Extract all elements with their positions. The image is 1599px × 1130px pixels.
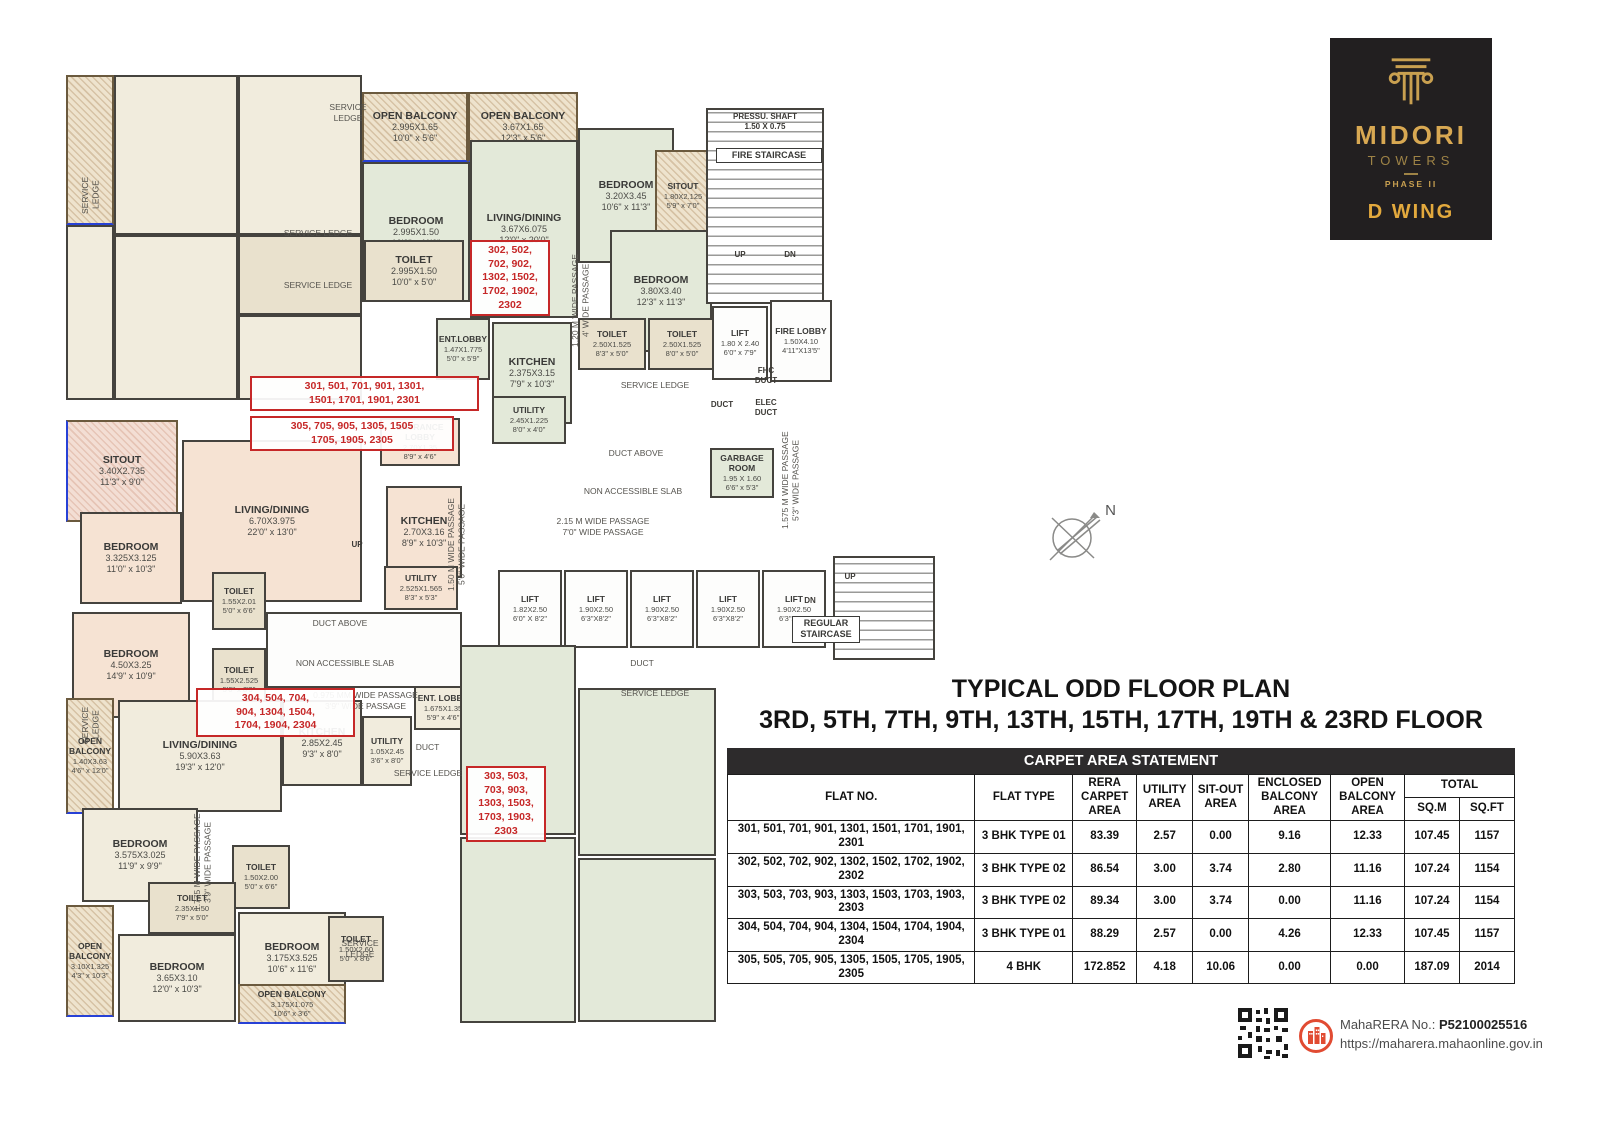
room-dim-metric: 1.95 X 1.60 bbox=[723, 474, 761, 483]
rera-footer: MahaRERA No.: P52100025516 https://mahar… bbox=[1236, 1004, 1566, 1066]
room-name: TOILET bbox=[224, 587, 254, 597]
table-cell: 172.852 bbox=[1073, 951, 1137, 984]
flat-number-badge: 302, 502, 702, 902, 1302, 1502, 1702, 19… bbox=[470, 240, 550, 316]
plan-annotation-duct: DUCT bbox=[400, 742, 455, 753]
room-lift: LIFT1.90X2.506'3"X8'2" bbox=[630, 570, 694, 648]
north-label: N bbox=[1105, 502, 1116, 519]
room-dim-metric: 2.525X1.565 bbox=[400, 584, 443, 593]
room-dim-metric: 1.90X2.50 bbox=[777, 605, 811, 614]
room-name: LIFT bbox=[719, 595, 737, 605]
room-name: LIFT bbox=[587, 595, 605, 605]
room-dim-imperial: 6'3"X8'2" bbox=[713, 614, 743, 623]
flat-number-badge: 304, 504, 704, 904, 1304, 1504, 1704, 19… bbox=[196, 688, 355, 737]
table-cell: 86.54 bbox=[1073, 853, 1137, 886]
room-bedroom: BEDROOM3.325X3.12511'0" x 10'3" bbox=[80, 512, 182, 604]
table-cell: 4.18 bbox=[1137, 951, 1193, 984]
room-dim-imperial: 5'0" x 6'6" bbox=[223, 606, 256, 615]
table-cell: 107.45 bbox=[1405, 919, 1460, 952]
room-name: OPEN BALCONY bbox=[258, 990, 326, 1000]
room-name: TOILET bbox=[395, 254, 432, 266]
room bbox=[578, 688, 716, 856]
table-cell: 10.06 bbox=[1193, 951, 1249, 984]
maharera-building-icon bbox=[1298, 1018, 1334, 1054]
room bbox=[114, 235, 238, 400]
room-dim-imperial: 11'3" x 9'0" bbox=[100, 477, 144, 488]
room-dim-metric: 3.40X2.735 bbox=[99, 466, 145, 477]
room-name: OPEN BALCONY bbox=[481, 110, 566, 122]
plan-annotation-non-accessible-slab: NON ACCESSIBLE SLAB bbox=[558, 486, 708, 497]
room bbox=[238, 75, 362, 235]
room-dim-metric: 2.45X1.225 bbox=[510, 416, 548, 425]
room-bedroom: BEDROOM3.65X3.1012'0" x 10'3" bbox=[118, 934, 236, 1022]
plan-annotation-duct-above: DUCT ABOVE bbox=[588, 448, 684, 459]
plan-annotation-fhc: FHC DUCT bbox=[746, 366, 786, 386]
room-dim-metric: 3.80X3.40 bbox=[640, 286, 681, 297]
table-cell: 2014 bbox=[1459, 951, 1514, 984]
table-cell: 3.00 bbox=[1137, 886, 1193, 919]
table-cell: 89.34 bbox=[1073, 886, 1137, 919]
room-name: OPEN BALCONY bbox=[68, 942, 112, 962]
room-dim-metric: 2.50X1.525 bbox=[663, 340, 701, 349]
flat-number-badge: 305, 705, 905, 1305, 1505 1705, 1905, 23… bbox=[250, 416, 454, 451]
table-cell: 3 BHK TYPE 01 bbox=[975, 821, 1073, 854]
room-name: LIVING/DINING bbox=[235, 504, 310, 516]
room-lift: LIFT1.90X2.506'3"X8'2" bbox=[696, 570, 760, 648]
table-cell: 9.16 bbox=[1249, 821, 1331, 854]
plan-annotation-duct-above: DUCT ABOVE bbox=[292, 618, 388, 629]
table-row: 304, 504, 704, 904, 1304, 1504, 1704, 19… bbox=[728, 919, 1515, 952]
table-cell: 302, 502, 702, 902, 1302, 1502, 1702, 19… bbox=[728, 853, 975, 886]
rera-text: MahaRERA No.: P52100025516 https://mahar… bbox=[1340, 1016, 1543, 1054]
plan-annotation-service: SERVICE LEDGE bbox=[318, 102, 378, 123]
room-dim-metric: 3.175X3.525 bbox=[266, 953, 317, 964]
room-dim-metric: 1.55X2.525 bbox=[220, 676, 258, 685]
room-dim-metric: 3.325X3.125 bbox=[105, 553, 156, 564]
room-dim-imperial: 6'0" x 7'9" bbox=[724, 348, 757, 357]
room-dim-imperial: 5'0" x 6'6" bbox=[245, 882, 278, 891]
room-dim-metric: 2.995X1.50 bbox=[391, 266, 437, 277]
room-name: TOILET bbox=[597, 330, 627, 340]
table-cell: 11.16 bbox=[1331, 853, 1405, 886]
table-cell: 304, 504, 704, 904, 1304, 1504, 1704, 19… bbox=[728, 919, 975, 952]
room-dim-metric: 3.575X3.025 bbox=[114, 850, 165, 861]
room-name: LIFT bbox=[653, 595, 671, 605]
room-dim-imperial: 3'6" x 8'0" bbox=[371, 756, 404, 765]
table-title-bar: CARPET AREA STATEMENT bbox=[727, 748, 1515, 774]
room-name: FIRE LOBBY bbox=[775, 327, 826, 337]
room-lift: LIFT1.82X2.506'0" X 8'2" bbox=[498, 570, 562, 648]
plan-annotation-service-ledge: SERVICE LEDGE bbox=[600, 380, 710, 391]
room bbox=[238, 235, 362, 315]
table-cell: 0.00 bbox=[1331, 951, 1405, 984]
brand-subtitle: TOWERS bbox=[1368, 153, 1455, 168]
phase-label: PHASE II bbox=[1385, 179, 1437, 189]
plan-title-line1: TYPICAL ODD FLOOR PLAN bbox=[727, 674, 1515, 705]
col-total-sqft: SQ.FT bbox=[1459, 798, 1514, 821]
room-name: KITCHEN bbox=[509, 356, 556, 368]
table-cell: 0.00 bbox=[1249, 886, 1331, 919]
plan-annotation-1-20-m-wide-passage: 1.20 M WIDE PASSAGE 4' WIDE PASSAGE bbox=[570, 238, 591, 363]
col-enclosed-balcony-area: ENCLOSED BALCONY AREA bbox=[1249, 775, 1331, 821]
flat-number-badge: 303, 503, 703, 903, 1303, 1503, 1703, 19… bbox=[466, 766, 546, 842]
plan-annotation-up: UP bbox=[838, 572, 862, 582]
room-dim-metric: 3.175X1.075 bbox=[271, 1000, 314, 1009]
table-cell: 2.57 bbox=[1137, 821, 1193, 854]
table-cell: 11.16 bbox=[1331, 886, 1405, 919]
room-dim-metric: 1.50X4.10 bbox=[784, 337, 818, 346]
wing-label: D WING bbox=[1368, 201, 1454, 224]
column-icon bbox=[1382, 56, 1440, 112]
plan-annotation-up: UP bbox=[345, 540, 369, 550]
room-dim-metric: 1.47X1.775 bbox=[444, 345, 482, 354]
table-cell: 301, 501, 701, 901, 1301, 1501, 1701, 19… bbox=[728, 821, 975, 854]
table-cell: 305, 505, 705, 905, 1305, 1505, 1705, 19… bbox=[728, 951, 975, 984]
room bbox=[66, 225, 114, 400]
page: { "logo": { "brand": "MIDORI", "sub": "T… bbox=[0, 0, 1599, 1130]
plan-annotation-pressu-shaft: PRESSU. SHAFT 1.50 X 0.75 bbox=[712, 112, 818, 132]
table-cell: 3.74 bbox=[1193, 853, 1249, 886]
room-name: GARBAGE ROOM bbox=[712, 454, 772, 474]
room-dim-imperial: 10'6" x 3'6" bbox=[274, 1009, 311, 1018]
table-cell: 3 BHK TYPE 02 bbox=[975, 886, 1073, 919]
room-name: TOILET bbox=[246, 863, 276, 873]
plan-annotation-service-ledge: SERVICE LEDGE bbox=[268, 228, 368, 239]
plan-annotation-non-accessible-slab: NON ACCESSIBLE SLAB bbox=[270, 658, 420, 669]
room-open-balcony: OPEN BALCONY3.175X1.07510'6" x 3'6" bbox=[238, 984, 346, 1024]
room-dim-metric: 1.90X2.50 bbox=[711, 605, 745, 614]
room-dim-imperial: 8'3" x 5'0" bbox=[596, 349, 629, 358]
room-dim-metric: 1.55X2.01 bbox=[222, 597, 256, 606]
room-dim-metric: 2.85X2.45 bbox=[301, 738, 342, 749]
qr-code bbox=[1236, 1006, 1290, 1060]
plan-annotation-service: SERVICE LEDGE bbox=[330, 938, 390, 959]
table-row: 302, 502, 702, 902, 1302, 1502, 1702, 19… bbox=[728, 853, 1515, 886]
room-dim-metric: 1.80X2.125 bbox=[664, 192, 702, 201]
room-garbage-room: GARBAGE ROOM1.95 X 1.606'6" x 5'3" bbox=[710, 448, 774, 498]
room-dim-metric: 2.995X1.65 bbox=[392, 122, 438, 133]
room-name: SITOUT bbox=[667, 182, 698, 192]
room-dim-imperial: 5'9" x 4'6" bbox=[427, 713, 460, 722]
table-cell: 1154 bbox=[1459, 886, 1514, 919]
room-name: KITCHEN bbox=[401, 515, 448, 527]
col-sitout-area: SIT-OUT AREA bbox=[1193, 775, 1249, 821]
col-total: TOTAL bbox=[1405, 775, 1515, 798]
room-dim-imperial: 8'0" x 5'0" bbox=[666, 349, 699, 358]
room-name: TOILET bbox=[224, 666, 254, 676]
plan-annotation-2-15-m-wide-passage: 2.15 M WIDE PASSAGE 7'0" WIDE PASSAGE bbox=[528, 516, 678, 537]
plan-annotation-service-ledge: SERVICE LEDGE bbox=[600, 688, 710, 699]
room-dim-metric: 2.375X3.15 bbox=[509, 368, 555, 379]
room-dim-imperial: 8'0" x 4'0" bbox=[513, 425, 546, 434]
col-flat-type: FLAT TYPE bbox=[975, 775, 1073, 821]
table-row: 301, 501, 701, 901, 1301, 1501, 1701, 19… bbox=[728, 821, 1515, 854]
room-ent-lobby: ENT.LOBBY1.47X1.7755'0" x 5'9" bbox=[436, 318, 490, 380]
room-dim-imperial: 10'0" x 5'0" bbox=[392, 277, 436, 288]
room-dim-metric: 2.50X1.525 bbox=[593, 340, 631, 349]
table-cell: 1154 bbox=[1459, 853, 1514, 886]
room bbox=[578, 858, 716, 1022]
room-dim-metric: 4.50X3.25 bbox=[110, 660, 151, 671]
plan-annotation-dn: DN bbox=[798, 596, 822, 606]
plan-title: TYPICAL ODD FLOOR PLAN 3RD, 5TH, 7TH, 9T… bbox=[727, 674, 1515, 737]
room bbox=[114, 75, 238, 235]
room-name: BEDROOM bbox=[104, 648, 159, 660]
room-dim-metric: 3.67X1.65 bbox=[502, 122, 543, 133]
plan-annotation-dn: DN bbox=[778, 250, 802, 260]
room-sitout: SITOUT1.80X2.1255'9" x 7'0" bbox=[655, 150, 711, 242]
room-dim-imperial: 14'9" x 10'9" bbox=[106, 671, 155, 682]
col-total-sqm: SQ.M bbox=[1405, 798, 1460, 821]
plan-annotation-1-575-m-wide-passage: 1.575 M WIDE PASSAGE 5'3" WIDE PASSAGE bbox=[780, 418, 801, 543]
flat-number-badge: 301, 501, 701, 901, 1301, 1501, 1701, 19… bbox=[250, 376, 479, 411]
table-cell: 83.39 bbox=[1073, 821, 1137, 854]
room-dim-imperial: 9'3" x 8'0" bbox=[302, 749, 341, 760]
room-dim-metric: 1.80 X 2.40 bbox=[721, 339, 759, 348]
room-name: SITOUT bbox=[103, 454, 141, 466]
table-row: 303, 503, 703, 903, 1303, 1503, 1703, 19… bbox=[728, 886, 1515, 919]
room-dim-imperial: 6'6" x 5'3" bbox=[726, 483, 759, 492]
rera-url: https://maharera.mahaonline.gov.in bbox=[1340, 1035, 1543, 1054]
divider bbox=[1404, 173, 1418, 175]
plan-annotation-up: UP bbox=[728, 250, 752, 260]
room-name: ENT.LOBBY bbox=[439, 335, 487, 345]
room-name: BEDROOM bbox=[150, 961, 205, 973]
table-cell: 303, 503, 703, 903, 1303, 1503, 1703, 19… bbox=[728, 886, 975, 919]
plan-annotation-elec: ELEC DUCT bbox=[746, 398, 786, 418]
room-dim-metric: 5.90X3.63 bbox=[179, 751, 220, 762]
table-cell: 3 BHK TYPE 01 bbox=[975, 919, 1073, 952]
room-dim-imperial: 4'6" x 12'0" bbox=[72, 766, 109, 775]
room-dim-imperial: 10'6" x 11'3" bbox=[602, 202, 651, 213]
table-cell: 12.33 bbox=[1331, 919, 1405, 952]
room-dim-metric: 3.20X3.45 bbox=[605, 191, 646, 202]
room-dim-imperial: 10'0" x 5'6" bbox=[393, 133, 437, 144]
room-dim-imperial: 10'6" x 11'6" bbox=[268, 964, 317, 975]
room-toilet: TOILET1.50X2.005'0" x 6'6" bbox=[232, 845, 290, 909]
room-name: TOILET bbox=[667, 330, 697, 340]
room-name: BEDROOM bbox=[599, 179, 654, 191]
room-dim-metric: 1.05X2.45 bbox=[370, 747, 404, 756]
room-name: BEDROOM bbox=[113, 838, 168, 850]
room-dim-imperial: 6'3"X8'2" bbox=[647, 614, 677, 623]
room-toilet: TOILET1.55X2.015'0" x 6'6" bbox=[212, 572, 266, 630]
room-dim-metric: 3.10X1.325 bbox=[71, 962, 109, 971]
room-name: UTILITY bbox=[371, 737, 403, 747]
table-cell: 3.74 bbox=[1193, 886, 1249, 919]
room-dim-imperial: 8'9" x 4'6" bbox=[404, 452, 437, 461]
col-rera-carpet-area: RERA CARPET AREA bbox=[1073, 775, 1137, 821]
room-dim-imperial: 22'0" x 13'0" bbox=[247, 527, 296, 538]
room-dim-imperial: 7'9" x 10'3" bbox=[510, 379, 554, 390]
room-dim-metric: 2.70X3.16 bbox=[403, 527, 444, 538]
table-cell: 107.45 bbox=[1405, 821, 1460, 854]
room-name: BEDROOM bbox=[104, 541, 159, 553]
room-dim-metric: 1.50X2.00 bbox=[244, 873, 278, 882]
room-name: LIVING/DINING bbox=[163, 739, 238, 751]
plan-annotation-service-ledge: SERVICE LEDGE bbox=[268, 280, 368, 291]
table-cell: 0.00 bbox=[1249, 951, 1331, 984]
table-cell: 3.00 bbox=[1137, 853, 1193, 886]
room-dim-imperial: 6'0" X 8'2" bbox=[513, 614, 547, 623]
room-dim-imperial: 12'3" x 11'3" bbox=[637, 297, 686, 308]
plan-annotation-service-ledge: SERVICE LEDGE bbox=[388, 768, 468, 779]
room-name: UTILITY bbox=[405, 574, 437, 584]
col-flat-no: FLAT NO. bbox=[728, 775, 975, 821]
room-dim-imperial: 11'0" x 10'3" bbox=[107, 564, 156, 575]
plan-annotation-fire-staircase: FIRE STAIRCASE bbox=[716, 148, 822, 163]
room-name: LIFT bbox=[731, 329, 749, 339]
room-dim-metric: 3.65X3.10 bbox=[156, 973, 197, 984]
room-dim-metric: 6.70X3.975 bbox=[249, 516, 295, 527]
room-name: LIFT bbox=[521, 595, 539, 605]
room-dim-metric: 3.67X6.075 bbox=[501, 224, 547, 235]
col-open-balcony-area: OPEN BALCONY AREA bbox=[1331, 775, 1405, 821]
plan-annotation-service: SERVICE LEDGE bbox=[80, 160, 101, 230]
room-dim-imperial: 6'3"X8'2" bbox=[581, 614, 611, 623]
room-name: LIVING/DINING bbox=[487, 212, 562, 224]
room-dim-imperial: 4'11"X13'5" bbox=[782, 346, 820, 355]
col-utility-area: UTILITY AREA bbox=[1137, 775, 1193, 821]
table-cell: 0.00 bbox=[1193, 821, 1249, 854]
room-dim-imperial: 4'3" x 10'3" bbox=[72, 971, 109, 980]
room-dim-metric: 1.82X2.50 bbox=[513, 605, 547, 614]
plan-annotation-1-775-m-wide-passage: 1.775 M WIDE PASSAGE 3'9" WIDE PASSAGE bbox=[192, 800, 213, 925]
rera-label: MahaRERA No.: bbox=[1340, 1017, 1439, 1032]
table-cell: 3 BHK TYPE 02 bbox=[975, 853, 1073, 886]
room bbox=[460, 837, 576, 1023]
rera-number: P52100025516 bbox=[1439, 1017, 1527, 1032]
table-cell: 2.80 bbox=[1249, 853, 1331, 886]
table-row: 305, 505, 705, 905, 1305, 1505, 1705, 19… bbox=[728, 951, 1515, 984]
table-cell: 1157 bbox=[1459, 821, 1514, 854]
room-toilet: TOILET2.50X1.5258'0" x 5'0" bbox=[648, 318, 716, 370]
table-cell: 2.57 bbox=[1137, 919, 1193, 952]
table-cell: 4 BHK bbox=[975, 951, 1073, 984]
table-cell: 107.24 bbox=[1405, 853, 1460, 886]
room-dim-imperial: 8'3" x 5'3" bbox=[405, 593, 438, 602]
room-name: OPEN BALCONY bbox=[373, 110, 458, 122]
room-dim-metric: 2.995X1.50 bbox=[393, 227, 439, 238]
plan-annotation-regular: REGULAR STAIRCASE bbox=[792, 616, 860, 643]
table-cell: 1157 bbox=[1459, 919, 1514, 952]
table-cell: 88.29 bbox=[1073, 919, 1137, 952]
room-name: BEDROOM bbox=[634, 274, 689, 286]
room-dim-imperial: 5'0" x 5'9" bbox=[447, 354, 480, 363]
room-sitout: SITOUT3.40X2.73511'3" x 9'0" bbox=[66, 420, 178, 522]
plan-annotation-service: SERVICE LEDGE bbox=[80, 690, 101, 760]
plan-annotation-duct: DUCT bbox=[702, 400, 742, 410]
room-utility: UTILITY2.45X1.2258'0" x 4'0" bbox=[492, 396, 566, 444]
room-name: BEDROOM bbox=[389, 215, 444, 227]
room-dim-metric: 1.90X2.50 bbox=[645, 605, 679, 614]
room-dim-imperial: 5'9" x 7'0" bbox=[667, 201, 700, 210]
room-dim-metric: 1.90X2.50 bbox=[579, 605, 613, 614]
room-toilet: TOILET2.995X1.5010'0" x 5'0" bbox=[364, 240, 464, 302]
room bbox=[706, 108, 824, 304]
plan-annotation-duct: DUCT bbox=[612, 658, 672, 669]
table-cell: 107.24 bbox=[1405, 886, 1460, 919]
table-cell: 4.26 bbox=[1249, 919, 1331, 952]
table-cell: 0.00 bbox=[1193, 919, 1249, 952]
room-name: BEDROOM bbox=[265, 941, 320, 953]
room-open-balcony: OPEN BALCONY3.10X1.3254'3" x 10'3" bbox=[66, 905, 114, 1017]
plan-title-line2: 3RD, 5TH, 7TH, 9TH, 13TH, 15TH, 17TH, 19… bbox=[727, 705, 1515, 736]
brand-logo: MIDORI TOWERS PHASE II D WING bbox=[1330, 38, 1492, 240]
room-dim-imperial: 8'9" x 10'3" bbox=[402, 538, 446, 549]
room-living-dining: LIVING/DINING6.70X3.97522'0" x 13'0" bbox=[182, 440, 362, 602]
carpet-area-table: FLAT NO. FLAT TYPE RERA CARPET AREA UTIL… bbox=[727, 774, 1515, 984]
table-cell: 12.33 bbox=[1331, 821, 1405, 854]
room-name: UTILITY bbox=[513, 406, 545, 416]
north-compass: N bbox=[1038, 502, 1118, 568]
room-dim-imperial: 11'9" x 9'9" bbox=[118, 861, 162, 872]
table-cell: 187.09 bbox=[1405, 951, 1460, 984]
room-dim-imperial: 12'0" x 10'3" bbox=[152, 984, 201, 995]
room-dim-imperial: 19'3" x 12'0" bbox=[175, 762, 224, 773]
plan-annotation-1-50-m-wide-passage: 1.50 M WIDE PASSAGE 5'0" WIDE PASSAGE bbox=[446, 482, 467, 607]
room-lift: LIFT1.90X2.506'3"X8'2" bbox=[564, 570, 628, 648]
brand-name: MIDORI bbox=[1355, 120, 1467, 151]
